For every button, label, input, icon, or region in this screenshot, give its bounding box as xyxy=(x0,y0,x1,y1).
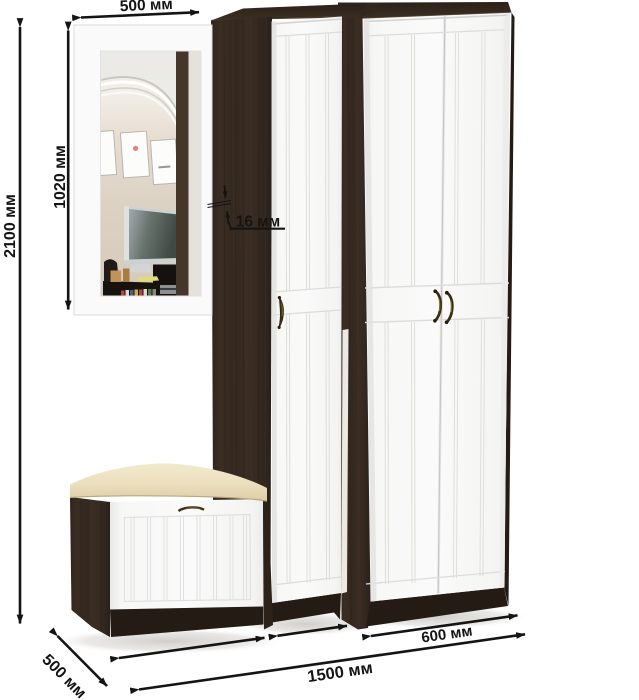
svg-text:1020 мм: 1020 мм xyxy=(52,145,69,209)
svg-text:16 мм: 16 мм xyxy=(236,214,280,231)
svg-text:2100 мм: 2100 мм xyxy=(2,194,19,258)
svg-text:500 мм: 500 мм xyxy=(119,0,173,15)
